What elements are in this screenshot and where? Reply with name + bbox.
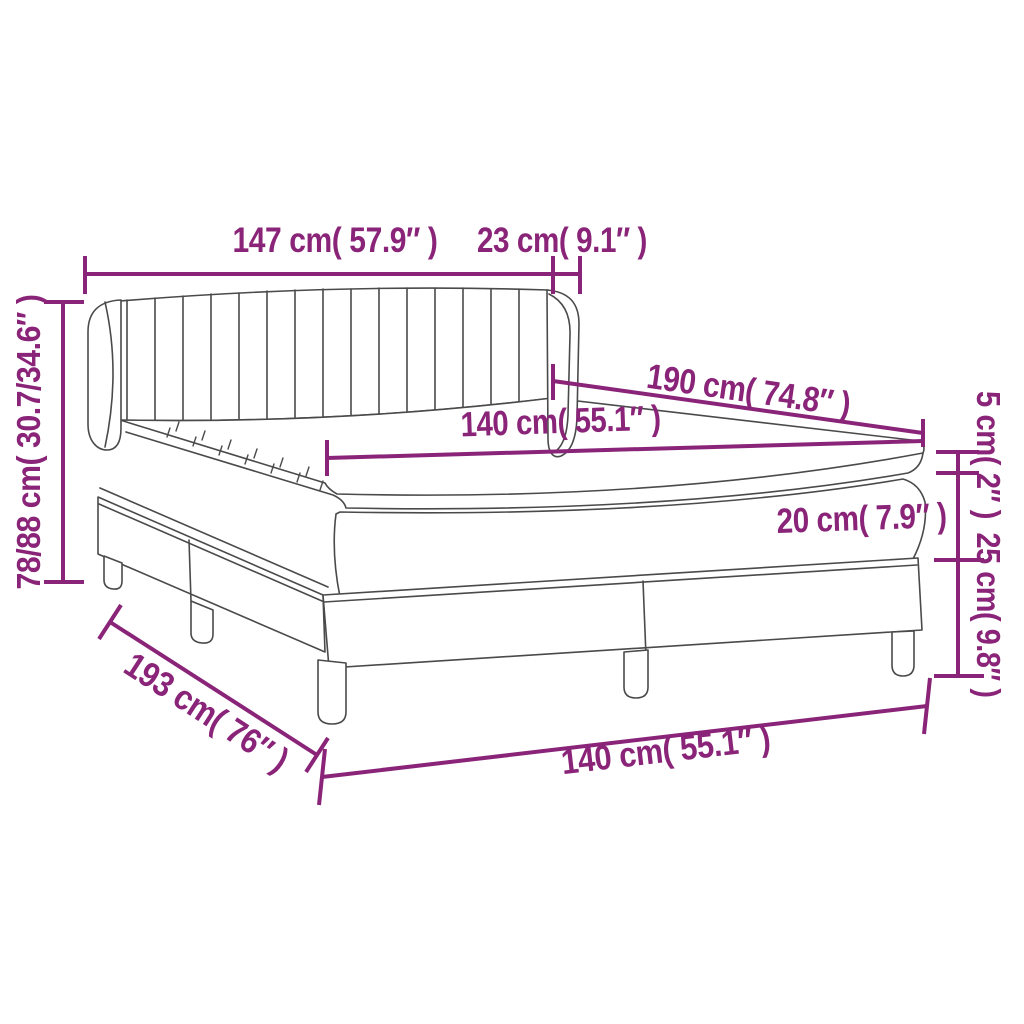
dim-mattress-thickness: 20 cm( 7.9″ ) xyxy=(776,496,947,541)
mattress-width-label: 140 cm( 55.1″ ) xyxy=(460,399,661,445)
dimension-diagram: 147 cm( 57.9″ ) 23 cm( 9.1″ ) 78/88 cm( … xyxy=(0,0,1024,1024)
base-height-label: 25 cm( 9.8″ ) xyxy=(970,533,1007,698)
bed-leg xyxy=(624,650,648,698)
base-length-label: 193 cm( 76″ ) xyxy=(117,645,295,780)
bed-leg xyxy=(892,631,914,676)
bed-leg xyxy=(318,660,346,724)
dim-base-width: 140 cm( 55.1″ ) xyxy=(319,678,930,805)
mattress-thickness-label: 20 cm( 7.9″ ) xyxy=(776,496,947,541)
bed-leg xyxy=(191,601,213,643)
dim-right-stack: 5 cm( 2″ ) 25 cm( 9.8″ ) xyxy=(934,391,1007,698)
base-width-label: 140 cm( 55.1″ ) xyxy=(559,719,772,782)
topper-thickness-label: 5 cm( 2″ ) xyxy=(970,391,1007,519)
headboard-left-wing xyxy=(88,300,121,450)
dim-headboard-width: 147 cm( 57.9″ ) 23 cm( 9.1″ ) xyxy=(85,221,647,294)
dim-total-height: 78/88 cm( 30.7/34.6″ ) xyxy=(10,295,84,590)
headboard-width-label: 147 cm( 57.9″ ) xyxy=(233,221,438,260)
total-height-label: 78/88 cm( 30.7/34.6″ ) xyxy=(10,295,47,590)
headboard-side-depth-label: 23 cm( 9.1″ ) xyxy=(477,221,647,260)
headboard-panel xyxy=(120,288,552,420)
diagram-canvas: 147 cm( 57.9″ ) 23 cm( 9.1″ ) 78/88 cm( … xyxy=(0,0,1024,1024)
